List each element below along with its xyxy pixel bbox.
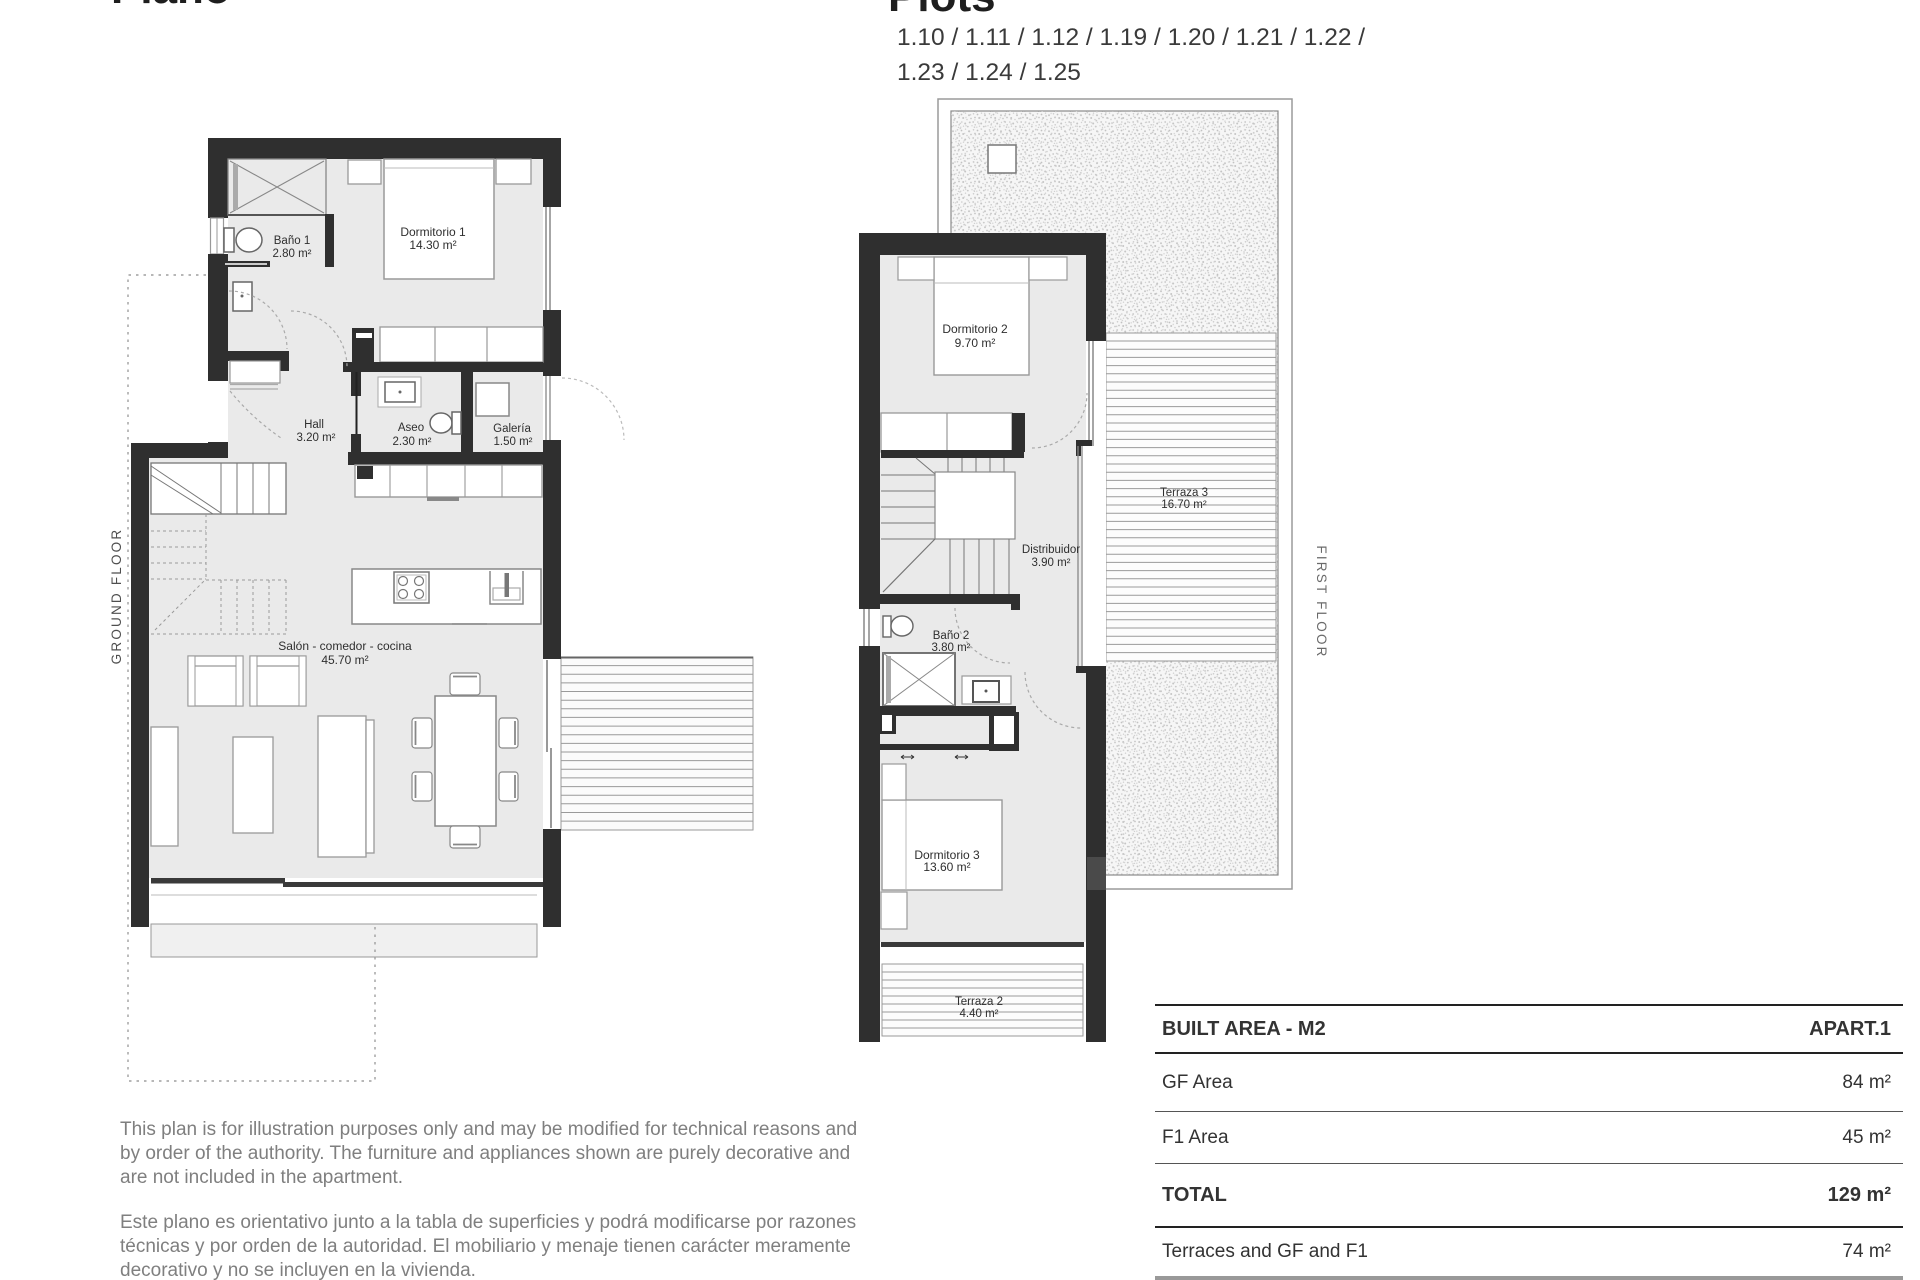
- svg-text:16.70 m²: 16.70 m²: [1161, 499, 1207, 511]
- svg-text:Terraza 2: Terraza 2: [955, 996, 1003, 1008]
- svg-text:Terraza 3: Terraza 3: [1160, 487, 1208, 499]
- svg-text:FIRST FLOOR: FIRST FLOOR: [1314, 545, 1329, 658]
- svg-text:Baño 1: Baño 1: [274, 235, 310, 247]
- svg-text:2.30 m²: 2.30 m²: [393, 436, 432, 448]
- svg-text:GROUND FLOOR: GROUND FLOOR: [109, 528, 124, 665]
- svg-text:Galería: Galería: [493, 423, 531, 435]
- svg-text:3.80 m²: 3.80 m²: [932, 642, 971, 654]
- svg-text:45.70 m²: 45.70 m²: [321, 653, 368, 667]
- svg-text:3.90 m²: 3.90 m²: [1032, 557, 1071, 569]
- svg-text:13.60 m²: 13.60 m²: [923, 860, 970, 874]
- svg-text:3.20 m²: 3.20 m²: [297, 432, 336, 444]
- svg-text:Hall: Hall: [304, 419, 324, 431]
- svg-text:Dormitorio 2: Dormitorio 2: [942, 322, 1008, 336]
- svg-text:Baño 2: Baño 2: [933, 630, 969, 642]
- svg-text:Dormitorio 1: Dormitorio 1: [400, 225, 466, 239]
- svg-text:2.80 m²: 2.80 m²: [273, 248, 312, 260]
- svg-text:Distribuidor: Distribuidor: [1022, 544, 1080, 556]
- svg-text:4.40 m²: 4.40 m²: [960, 1008, 999, 1020]
- svg-text:9.70 m²: 9.70 m²: [955, 336, 996, 350]
- svg-text:Aseo: Aseo: [398, 422, 424, 434]
- svg-text:1.50 m²: 1.50 m²: [494, 436, 533, 448]
- svg-text:Salón - comedor - cocina: Salón - comedor - cocina: [278, 639, 412, 653]
- svg-text:14.30 m²: 14.30 m²: [409, 238, 456, 252]
